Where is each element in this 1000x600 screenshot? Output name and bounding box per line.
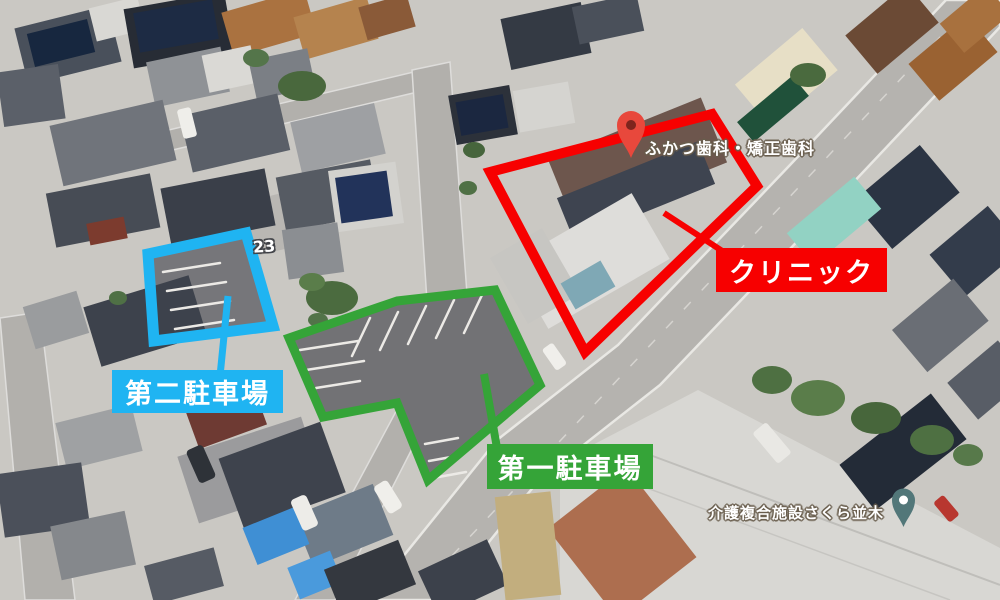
route-number-label: 23 bbox=[252, 236, 276, 257]
map-canvas[interactable]: ふかつ歯科・矯正歯科 介護複合施設さくら並木 23 クリニック 第二駐車場 第一… bbox=[0, 0, 1000, 600]
clinic-label: クリニック bbox=[716, 248, 887, 292]
dental-clinic-pin-icon[interactable] bbox=[614, 110, 648, 160]
care-facility-place-label[interactable]: 介護複合施設さくら並木 bbox=[708, 502, 884, 523]
second-parking-label: 第二駐車場 bbox=[112, 370, 283, 413]
first-parking-label: 第一駐車場 bbox=[487, 444, 653, 489]
dental-clinic-place-label[interactable]: ふかつ歯科・矯正歯科 bbox=[645, 135, 815, 159]
care-facility-pin-icon[interactable] bbox=[890, 488, 917, 528]
